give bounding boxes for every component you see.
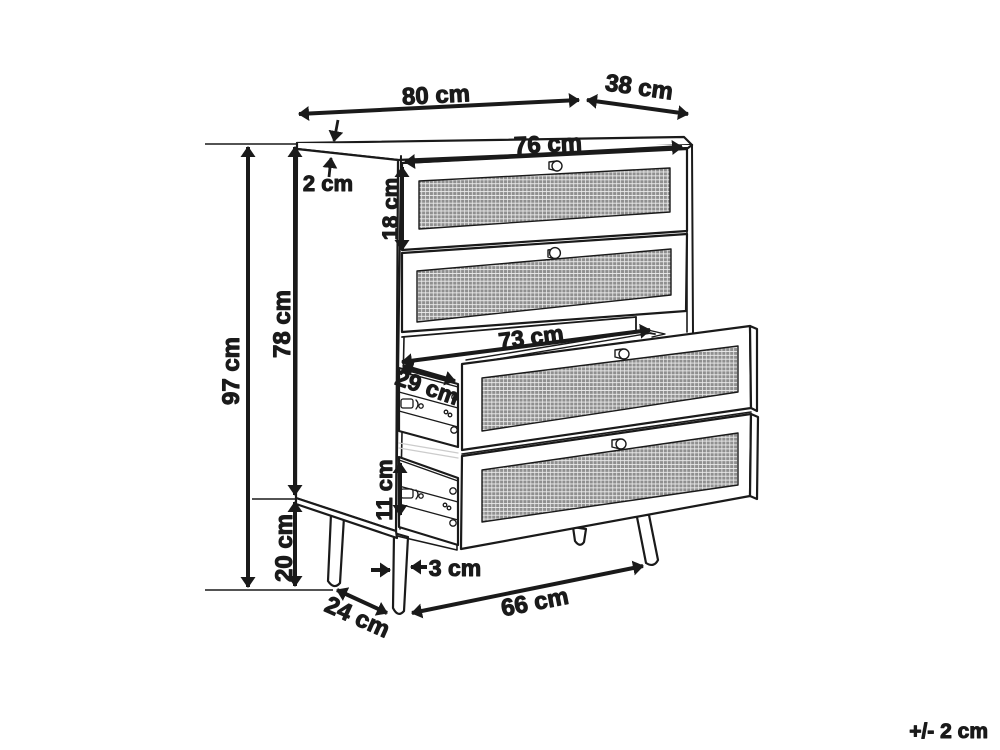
svg-text:+/- 2 cm: +/- 2 cm [909, 720, 988, 743]
svg-text:78 cm: 78 cm [269, 290, 296, 358]
svg-text:18 cm: 18 cm [378, 178, 403, 240]
svg-text:11 cm: 11 cm [372, 459, 397, 520]
svg-text:20 cm: 20 cm [271, 514, 298, 582]
svg-text:97 cm: 97 cm [218, 337, 245, 405]
svg-text:2 cm: 2 cm [303, 171, 353, 196]
svg-text:76 cm: 76 cm [513, 129, 582, 160]
svg-text:80 cm: 80 cm [401, 80, 470, 111]
svg-text:3 cm: 3 cm [429, 555, 481, 581]
